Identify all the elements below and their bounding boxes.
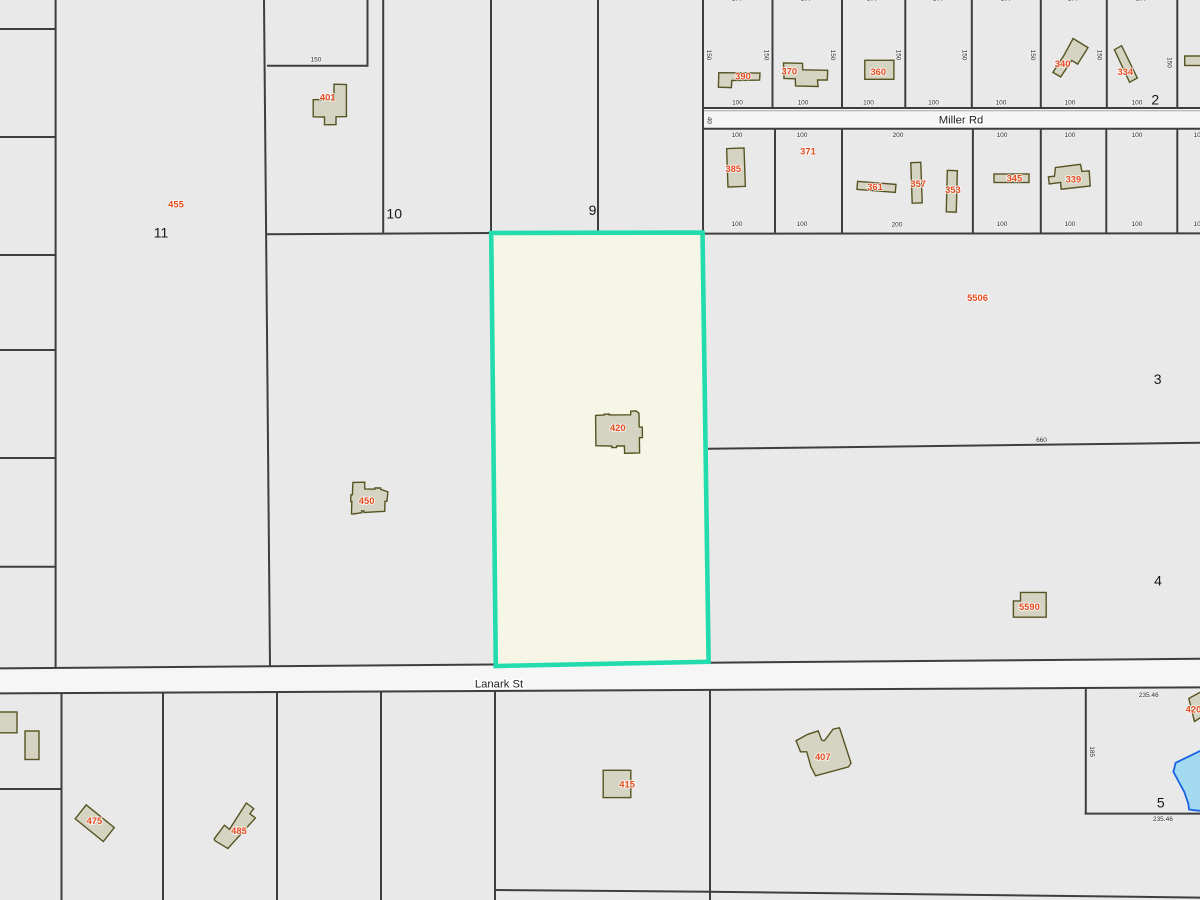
svg-text:357: 357 <box>910 178 926 189</box>
svg-text:4: 4 <box>1154 573 1162 589</box>
svg-text:5590: 5590 <box>1019 601 1040 612</box>
svg-text:100: 100 <box>1065 221 1076 228</box>
svg-text:100: 100 <box>1001 0 1012 3</box>
svg-text:385: 385 <box>725 163 741 174</box>
svg-text:5506: 5506 <box>967 292 988 303</box>
svg-text:420: 420 <box>610 422 626 433</box>
svg-text:Miller Rd: Miller Rd <box>939 114 984 126</box>
svg-text:100: 100 <box>1065 132 1076 139</box>
svg-text:150: 150 <box>311 57 322 64</box>
svg-text:100: 100 <box>797 132 808 139</box>
svg-text:100: 100 <box>1132 132 1143 139</box>
svg-text:150: 150 <box>762 50 769 61</box>
svg-text:100: 100 <box>1194 132 1200 139</box>
svg-text:100: 100 <box>1068 0 1079 3</box>
svg-text:235.46: 235.46 <box>1139 692 1159 699</box>
svg-text:150: 150 <box>1165 57 1172 68</box>
svg-text:100: 100 <box>732 132 743 139</box>
svg-text:100: 100 <box>732 100 743 107</box>
svg-text:100: 100 <box>732 0 743 3</box>
svg-text:185: 185 <box>1088 746 1095 757</box>
svg-text:100: 100 <box>1132 221 1143 228</box>
svg-text:5: 5 <box>1157 795 1165 811</box>
svg-text:100: 100 <box>798 100 809 107</box>
svg-text:100: 100 <box>1194 221 1200 228</box>
svg-text:420: 420 <box>1186 703 1200 714</box>
svg-text:371: 371 <box>800 145 816 156</box>
svg-text:100: 100 <box>996 100 1007 107</box>
svg-text:150: 150 <box>705 50 712 61</box>
svg-text:100: 100 <box>933 0 944 3</box>
svg-text:100: 100 <box>1136 0 1147 3</box>
svg-text:11: 11 <box>154 225 169 241</box>
svg-text:200: 200 <box>893 132 904 139</box>
svg-text:200: 200 <box>892 222 903 229</box>
svg-text:100: 100 <box>732 221 743 228</box>
svg-text:40: 40 <box>706 117 713 125</box>
svg-text:100: 100 <box>867 0 878 3</box>
svg-text:353: 353 <box>945 184 961 195</box>
svg-text:150: 150 <box>960 50 967 61</box>
svg-text:100: 100 <box>997 221 1008 228</box>
svg-text:235.46: 235.46 <box>1153 816 1173 823</box>
svg-text:100: 100 <box>863 100 874 107</box>
svg-text:150: 150 <box>895 50 902 61</box>
svg-text:100: 100 <box>801 0 812 3</box>
svg-text:150: 150 <box>1029 50 1036 61</box>
svg-text:9: 9 <box>589 202 597 218</box>
svg-text:485: 485 <box>231 825 247 836</box>
svg-text:100: 100 <box>797 221 808 228</box>
svg-text:100: 100 <box>928 100 939 107</box>
svg-text:150: 150 <box>1096 50 1103 61</box>
svg-text:100: 100 <box>997 132 1008 139</box>
svg-text:Lanark St: Lanark St <box>475 678 524 690</box>
svg-text:407: 407 <box>815 751 831 762</box>
svg-text:450: 450 <box>359 495 375 506</box>
svg-text:370: 370 <box>781 65 797 76</box>
svg-text:360: 360 <box>870 66 886 77</box>
svg-text:100: 100 <box>1132 100 1143 107</box>
svg-text:339: 339 <box>1066 173 1082 184</box>
svg-text:390: 390 <box>735 71 751 82</box>
svg-text:660: 660 <box>1036 437 1047 444</box>
svg-text:361: 361 <box>867 181 883 192</box>
svg-text:3: 3 <box>1154 371 1162 387</box>
svg-text:401: 401 <box>320 92 336 103</box>
svg-text:100: 100 <box>1065 100 1076 107</box>
svg-text:455: 455 <box>168 199 184 210</box>
svg-text:340: 340 <box>1055 58 1071 69</box>
svg-text:150: 150 <box>829 50 836 61</box>
svg-text:334: 334 <box>1117 66 1133 77</box>
svg-text:475: 475 <box>87 815 103 826</box>
svg-text:2: 2 <box>1151 92 1159 108</box>
svg-text:345: 345 <box>1007 173 1023 184</box>
svg-text:10: 10 <box>386 206 402 222</box>
svg-text:415: 415 <box>619 779 635 790</box>
